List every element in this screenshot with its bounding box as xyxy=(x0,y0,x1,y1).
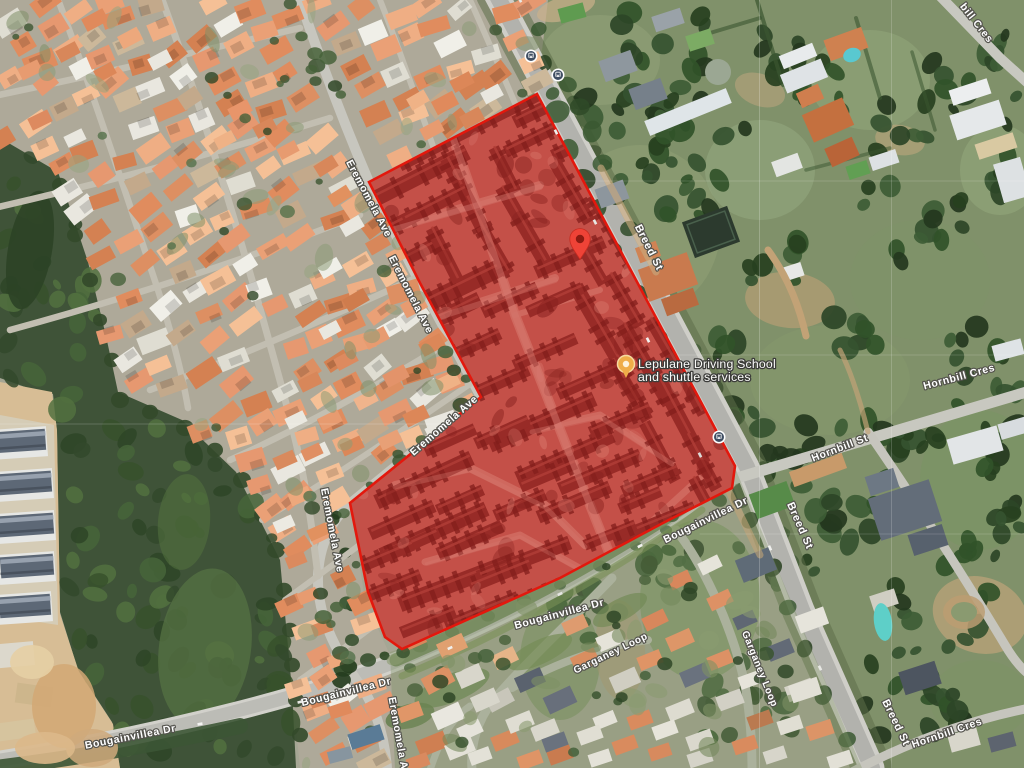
svg-text:and shuttle services: and shuttle services xyxy=(638,370,751,384)
svg-text:Lepulane Driving School: Lepulane Driving School xyxy=(638,357,776,371)
